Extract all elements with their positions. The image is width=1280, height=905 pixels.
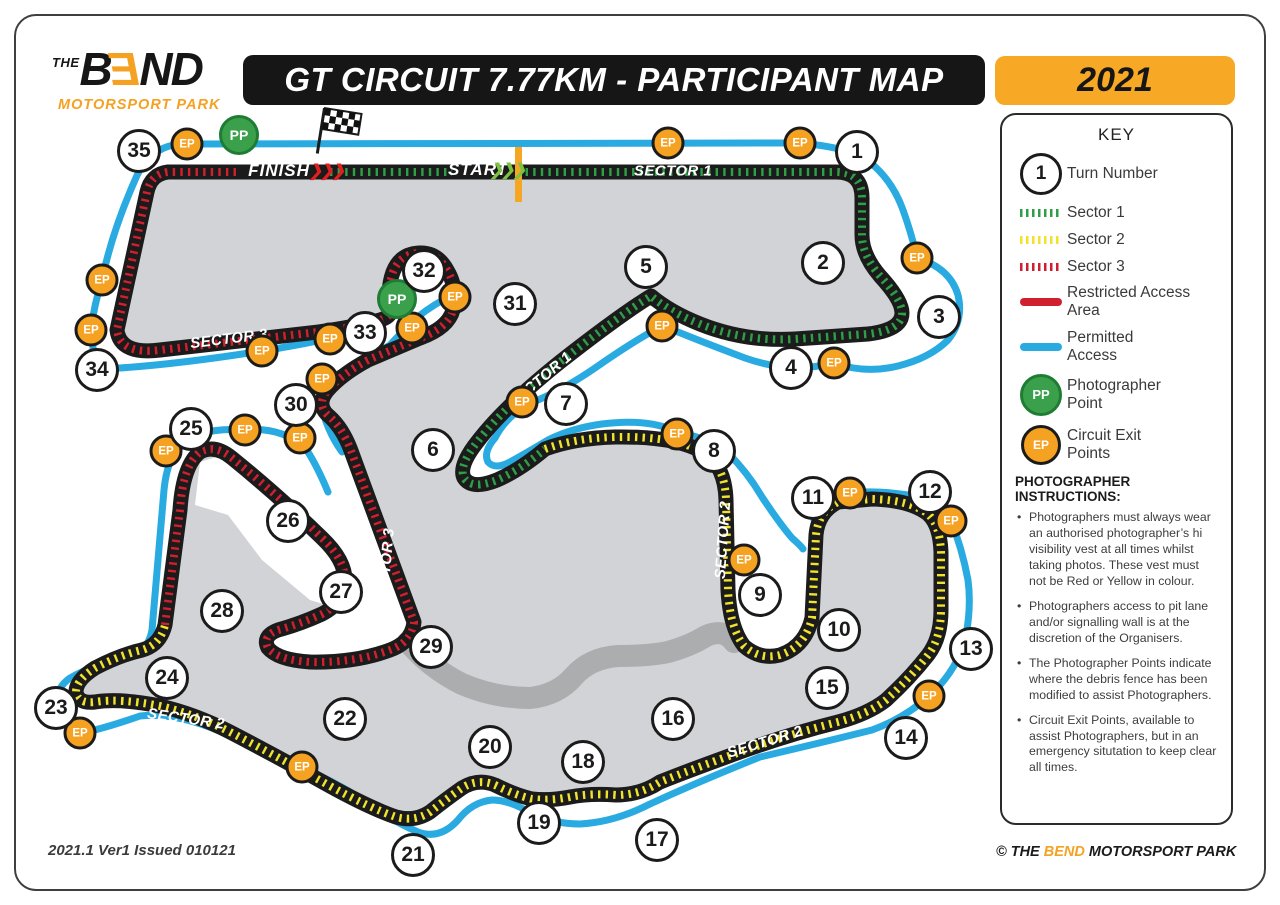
turn-marker-34: 34 <box>75 348 119 392</box>
circuit-exit-point-marker: EP <box>728 544 761 577</box>
turn-number-icon: 1 <box>1020 153 1062 195</box>
circuit-exit-point-marker: EP <box>646 310 679 343</box>
key-item-circuit-exit: EP Circuit Exit Points <box>1015 425 1218 465</box>
turn-marker-24: 24 <box>145 656 189 700</box>
key-title: KEY <box>1015 125 1218 145</box>
turn-marker-8: 8 <box>692 429 736 473</box>
turn-marker-18: 18 <box>561 740 605 784</box>
key-item-sector-3: Sector 3 <box>1015 258 1218 276</box>
circuit-exit-point-marker: EP <box>784 127 817 160</box>
circuit-exit-point-marker: EP <box>75 314 108 347</box>
key-item-sector-2: Sector 2 <box>1015 231 1218 249</box>
sector1-label: SECTOR 1 <box>634 163 712 180</box>
sector2-label: SECTOR 2 <box>146 705 226 733</box>
photographer-instructions-list: Photographers must always wear an author… <box>1015 510 1218 777</box>
instruction-item: Circuit Exit Points, available to assist… <box>1029 713 1218 777</box>
turn-marker-1: 1 <box>835 130 879 174</box>
photographer-point-marker: PP <box>219 115 259 155</box>
circuit-exit-point-marker: EP <box>229 414 262 447</box>
circuit-exit-point-marker: EP <box>913 680 946 713</box>
turn-marker-2: 2 <box>801 241 845 285</box>
key-item-restricted: Restricted Access Area <box>1015 284 1218 320</box>
turn-marker-27: 27 <box>319 570 363 614</box>
turn-marker-5: 5 <box>624 245 668 289</box>
turn-marker-11: 11 <box>791 476 835 520</box>
turn-marker-13: 13 <box>949 627 993 671</box>
permitted-access-line-icon <box>1020 343 1062 351</box>
sector-label: Sector 2 <box>1067 231 1125 249</box>
sector-label: Sector 3 <box>1067 258 1125 276</box>
copyright-text: © THE BEND MOTORSPORT PARK <box>996 844 1236 860</box>
instruction-item: Photographers access to pit lane and/or … <box>1029 599 1218 647</box>
circuit-exit-point-marker: EP <box>439 281 472 314</box>
sector-1-dash-icon <box>1020 209 1062 217</box>
finish-label: FINISH <box>248 161 310 181</box>
circuit-exit-point-icon: EP <box>1021 425 1061 465</box>
key-item-photographer-point: PP Photographer Point <box>1015 374 1218 416</box>
instruction-item: Photographers must always wear an author… <box>1029 510 1218 590</box>
circuit-exit-point-marker: EP <box>661 418 694 451</box>
turn-marker-32: 32 <box>402 249 446 293</box>
circuit-exit-point-marker: EP <box>246 335 279 368</box>
logo-tagline: MOTORSPORT PARK <box>58 98 242 113</box>
turn-marker-15: 15 <box>805 666 849 710</box>
turn-marker-20: 20 <box>468 725 512 769</box>
key-item-permitted: Permitted Access <box>1015 329 1218 365</box>
turn-marker-26: 26 <box>266 499 310 543</box>
circuit-exit-point-marker: EP <box>171 128 204 161</box>
turn-marker-25: 25 <box>169 407 213 451</box>
circuit-exit-point-marker: EP <box>652 127 685 160</box>
turn-marker-22: 22 <box>323 697 367 741</box>
turn-marker-16: 16 <box>651 697 695 741</box>
photographer-point-icon: PP <box>1020 374 1062 416</box>
key-item-turn-number: 1 Turn Number <box>1015 153 1218 195</box>
turn-marker-35: 35 <box>117 129 161 173</box>
finish-chevrons: ❯❯❯ <box>309 161 343 181</box>
sector-2-dash-icon <box>1020 236 1062 244</box>
turn-marker-12: 12 <box>908 470 952 514</box>
circuit-exit-point-marker: EP <box>314 323 347 356</box>
turn-marker-10: 10 <box>817 608 861 652</box>
turn-marker-23: 23 <box>34 686 78 730</box>
turn-marker-30: 30 <box>274 383 318 427</box>
key-panel: KEY 1 Turn Number Sector 1Sector 2Sector… <box>1000 113 1233 825</box>
the-bend-logo: THEBEND MOTORSPORT PARK <box>52 46 242 113</box>
logo-bend: BEND <box>80 43 202 95</box>
circuit-exit-point-marker: EP <box>834 477 867 510</box>
turn-marker-17: 17 <box>635 818 679 862</box>
instruction-item: The Photographer Points indicate where t… <box>1029 656 1218 704</box>
restricted-access-line-icon <box>1020 298 1062 306</box>
turn-marker-9: 9 <box>738 573 782 617</box>
circuit-exit-point-marker: EP <box>901 242 934 275</box>
turn-marker-7: 7 <box>544 382 588 426</box>
turn-marker-29: 29 <box>409 625 453 669</box>
sector-3-dash-icon <box>1020 263 1062 271</box>
circuit-exit-point-marker: EP <box>506 386 539 419</box>
turn-marker-4: 4 <box>769 346 813 390</box>
turn-marker-21: 21 <box>391 833 435 877</box>
turn-marker-28: 28 <box>200 589 244 633</box>
circuit-exit-point-marker: EP <box>86 264 119 297</box>
circuit-exit-point-marker: EP <box>286 751 319 784</box>
copyright-brand: BEND <box>1044 844 1085 860</box>
turn-marker-6: 6 <box>411 428 455 472</box>
sector-label: Sector 1 <box>1067 204 1125 222</box>
year-badge: 2021 <box>995 56 1235 105</box>
page-title: GT CIRCUIT 7.77KM - PARTICIPANT MAP <box>243 55 985 105</box>
logo-the: THE <box>52 55 80 70</box>
circuit-exit-point-marker: EP <box>818 347 851 380</box>
turn-marker-19: 19 <box>517 801 561 845</box>
photographer-instructions-title: PHOTOGRAPHER INSTRUCTIONS: <box>1015 474 1218 504</box>
sector2-label: SECTOR 2 <box>725 722 805 761</box>
key-sector-items: Sector 1Sector 2Sector 3 <box>1015 204 1218 275</box>
turn-marker-33: 33 <box>343 311 387 355</box>
sector3-label: SECTOR 3 <box>374 527 398 606</box>
turn-marker-31: 31 <box>493 282 537 326</box>
turn-marker-14: 14 <box>884 716 928 760</box>
version-text: 2021.1 Ver1 Issued 010121 <box>48 842 236 859</box>
start-chevrons: ❯❯❯ <box>490 160 524 180</box>
turn-marker-3: 3 <box>917 295 961 339</box>
key-item-sector-1: Sector 1 <box>1015 204 1218 222</box>
participant-map-page: 1234567891011121314151617181920212223242… <box>0 0 1280 905</box>
